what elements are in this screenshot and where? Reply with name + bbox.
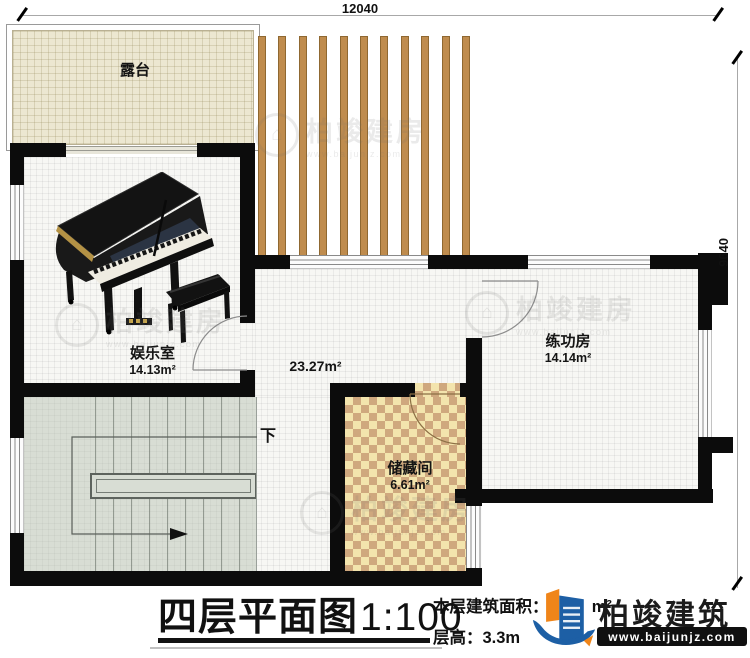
storage-room-label: 储藏间 bbox=[355, 460, 465, 477]
title-underline-thin bbox=[150, 647, 442, 649]
watermark-logo-icon: ⌂ bbox=[255, 113, 299, 157]
stair-treads-upper bbox=[95, 397, 257, 473]
right-dimension-label: 9640 bbox=[716, 238, 731, 267]
stair-open-edge bbox=[256, 397, 257, 571]
plan-title-text: 四层平面图 bbox=[158, 596, 358, 639]
window bbox=[10, 185, 24, 260]
title-underline-thick bbox=[158, 638, 430, 643]
watermark: ⌂ 柏竣建房www.baijunjz.com bbox=[55, 300, 226, 349]
company-logo-icon bbox=[531, 586, 597, 654]
watermark-logo-icon: ⌂ bbox=[465, 291, 509, 335]
terrace-floor bbox=[12, 30, 254, 145]
wall bbox=[10, 383, 255, 397]
hall-area: 23.27m² bbox=[258, 358, 373, 374]
wall bbox=[460, 383, 482, 397]
right-dimension-line bbox=[737, 58, 738, 588]
wall-corner bbox=[700, 437, 733, 453]
window bbox=[10, 438, 24, 533]
stair-handrail bbox=[90, 473, 257, 499]
title-block: 四层平面图1:100 本层建筑面积：7m² 层高：3.3m 柏竣建筑 bbox=[0, 584, 750, 658]
storage-door-threshold bbox=[415, 383, 460, 397]
window bbox=[290, 255, 428, 269]
floor-height-label: 层高： bbox=[433, 629, 483, 647]
entertainment-door-threshold bbox=[240, 323, 255, 370]
wall bbox=[255, 255, 290, 269]
watermark: ⌂ 柏竣建房www.baijunjz.com bbox=[255, 110, 426, 159]
watermark-logo-icon: ⌂ bbox=[55, 303, 99, 347]
floor-plan-page: 12040 9640 露台 娱乐室 14.13m² 23.27m² 练功房 14… bbox=[0, 0, 750, 658]
pergola-slat bbox=[442, 36, 450, 258]
wall bbox=[455, 489, 713, 503]
floor-height-value: 3.3m bbox=[483, 629, 521, 647]
watermark: ⌂ 柏竣建房www.baijunjz.com bbox=[465, 288, 636, 337]
terrace-sliding-door bbox=[66, 146, 197, 154]
wall bbox=[330, 383, 345, 575]
terrace-label: 露台 bbox=[80, 62, 190, 79]
hall-floor bbox=[255, 269, 466, 397]
watermark-logo-icon: ⌂ bbox=[300, 491, 344, 535]
watermark: ⌂ 柏竣建房www.baijunjz.com bbox=[300, 488, 471, 537]
pergola-slat bbox=[462, 36, 470, 258]
company-website: www.baijunjz.com bbox=[597, 627, 747, 646]
window bbox=[698, 330, 712, 437]
entertainment-room-area: 14.13m² bbox=[100, 363, 205, 377]
wall bbox=[240, 143, 255, 323]
plan-title: 四层平面图1:100 bbox=[158, 586, 463, 642]
wall bbox=[428, 255, 528, 269]
stairs-down-label: 下 bbox=[260, 428, 276, 446]
company-logo: 柏竣建筑 www.baijunjz.com bbox=[531, 584, 750, 658]
practice-room-area: 14.14m² bbox=[513, 351, 623, 365]
hall-corridor-floor bbox=[255, 397, 330, 571]
top-dimension-label: 12040 bbox=[300, 1, 420, 16]
window bbox=[528, 255, 650, 269]
stair-treads-lower bbox=[95, 499, 257, 571]
